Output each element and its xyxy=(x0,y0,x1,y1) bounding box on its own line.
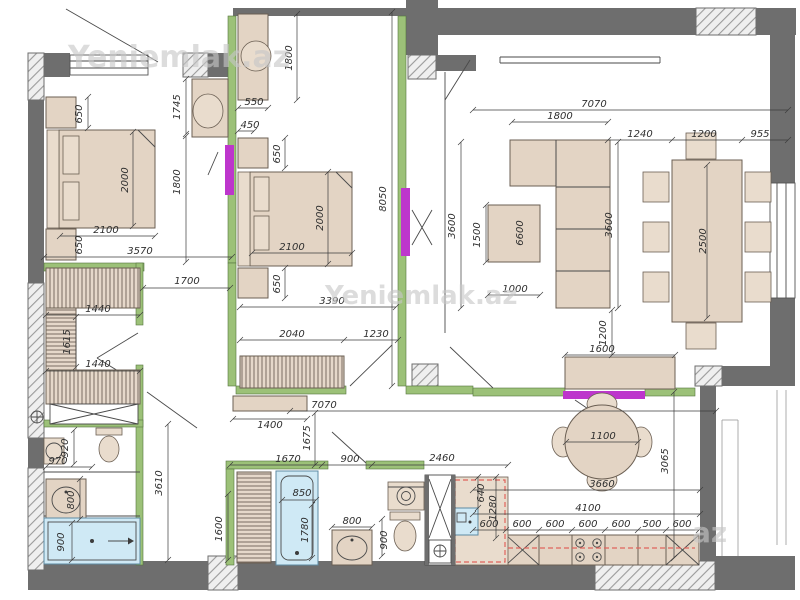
dimension-label: 800 xyxy=(342,516,361,527)
window-living-right xyxy=(770,183,795,298)
dimension-label: 550 xyxy=(244,97,263,108)
wardrobe xyxy=(240,356,344,388)
dimension-label: 650 xyxy=(272,144,283,163)
dimension-label: 3600 xyxy=(447,213,458,238)
dimension-label: 1745 xyxy=(172,94,183,119)
dimension-label: 640 xyxy=(476,483,487,502)
closet-rail xyxy=(46,268,140,308)
dimension-label: 1280 xyxy=(488,495,499,520)
dimension-label: 600 xyxy=(578,519,597,530)
dimension-label: 1675 xyxy=(302,425,313,450)
coffee-table xyxy=(488,205,540,262)
floor-plan: 6502000210065035701745180018005504506502… xyxy=(0,0,800,600)
dimension-label: 2500 xyxy=(698,228,709,253)
dimension-label: 450 xyxy=(240,120,259,131)
dimension-label: 850 xyxy=(292,488,311,499)
dimension-label: 3660 xyxy=(589,479,614,490)
hall-bench xyxy=(233,396,307,411)
dimension-label: 900 xyxy=(340,454,359,465)
floor-plan-drawing: 6502000210065035701745180018005504506502… xyxy=(0,0,800,600)
watermark: az xyxy=(692,516,727,549)
watermarks: Yeniemlak.az Yeniemlak.az az xyxy=(67,40,727,549)
towel-cabinet xyxy=(237,472,271,563)
dimension-label: 600 xyxy=(672,519,691,530)
dimension-label: 1200 xyxy=(598,320,609,345)
dimension-label: 1200 xyxy=(691,129,716,140)
ventilation-shaft xyxy=(425,475,455,565)
dressing-table-stool xyxy=(192,79,228,137)
dimension-label: 1230 xyxy=(363,329,388,340)
dimension-label: 600 xyxy=(611,519,630,530)
dimension-label: 500 xyxy=(642,519,661,530)
sliding-door-bedroom1 xyxy=(225,145,234,195)
hallway xyxy=(233,396,307,411)
dimension-label: 2100 xyxy=(279,242,304,253)
dimension-label: 600 xyxy=(512,519,531,530)
dimension-label: 8050 xyxy=(378,186,389,211)
dimension-label: 2040 xyxy=(279,329,304,340)
dimension-label: 650 xyxy=(272,274,283,293)
dimension-label: 1780 xyxy=(300,517,311,542)
watermark: Yeniemlak.az xyxy=(324,281,518,311)
dimension-label: 1500 xyxy=(472,222,483,247)
nightstand xyxy=(46,97,76,128)
dimension-label: 4100 xyxy=(575,503,600,514)
dimension-label: 900 xyxy=(56,532,67,551)
window-living-top xyxy=(500,57,660,63)
nightstand xyxy=(238,268,268,298)
dimension-label: 800 xyxy=(66,490,77,509)
dimension-label: 920 xyxy=(60,438,71,457)
dimension-label: 900 xyxy=(379,530,390,549)
dimension-label: 1700 xyxy=(174,276,199,287)
dimension-label: 1600 xyxy=(214,516,225,541)
dimension-label: 6600 xyxy=(515,220,526,245)
dimension-label: 650 xyxy=(74,104,85,123)
dimension-label: 3570 xyxy=(127,246,152,257)
sliding-door-bedroom2 xyxy=(401,188,410,256)
walk-in-closet xyxy=(31,268,140,424)
watermark: Yeniemlak.az xyxy=(67,40,290,75)
dimension-label: 955 xyxy=(750,129,769,140)
dimension-label: 7070 xyxy=(581,99,606,110)
washbasin xyxy=(332,530,372,565)
nightstand xyxy=(238,138,268,168)
dimension-label: 1440 xyxy=(85,359,110,370)
dimension-label: 2460 xyxy=(429,453,454,464)
closet-rail xyxy=(46,370,140,404)
dimension-label: 1800 xyxy=(547,111,572,122)
dimension-label: 3610 xyxy=(154,470,165,495)
toilet xyxy=(390,512,420,551)
balcony-rail-right xyxy=(722,390,786,556)
kitchen-sideboard xyxy=(565,357,675,389)
dimension-label: 1440 xyxy=(85,304,110,315)
dimension-label: 1100 xyxy=(590,431,615,442)
dimension-label: 3600 xyxy=(604,212,615,237)
dimension-label: 7070 xyxy=(311,400,336,411)
dimension-label: 1800 xyxy=(172,169,183,194)
dimension-label: 3065 xyxy=(660,448,671,473)
shoe-cabinet xyxy=(50,404,138,424)
dimension-label: 2000 xyxy=(120,167,131,192)
kitchen-sink xyxy=(452,508,478,535)
nightstand xyxy=(46,229,76,260)
bed-double xyxy=(47,130,155,228)
vent-symbol xyxy=(31,411,43,423)
dimension-label: 2100 xyxy=(93,225,118,236)
living-room xyxy=(488,133,771,349)
dimension-label: 600 xyxy=(545,519,564,530)
dimension-label: 1600 xyxy=(589,344,614,355)
dimension-label: 1670 xyxy=(275,454,300,465)
dimension-label: 1400 xyxy=(257,420,282,431)
washing-machine xyxy=(388,482,424,510)
dimension-label: 1615 xyxy=(62,329,73,354)
dimension-label: 2000 xyxy=(315,205,326,230)
dimension-label: 1240 xyxy=(627,129,652,140)
toilet-small xyxy=(96,428,122,462)
dimension-label: 650 xyxy=(74,235,85,254)
